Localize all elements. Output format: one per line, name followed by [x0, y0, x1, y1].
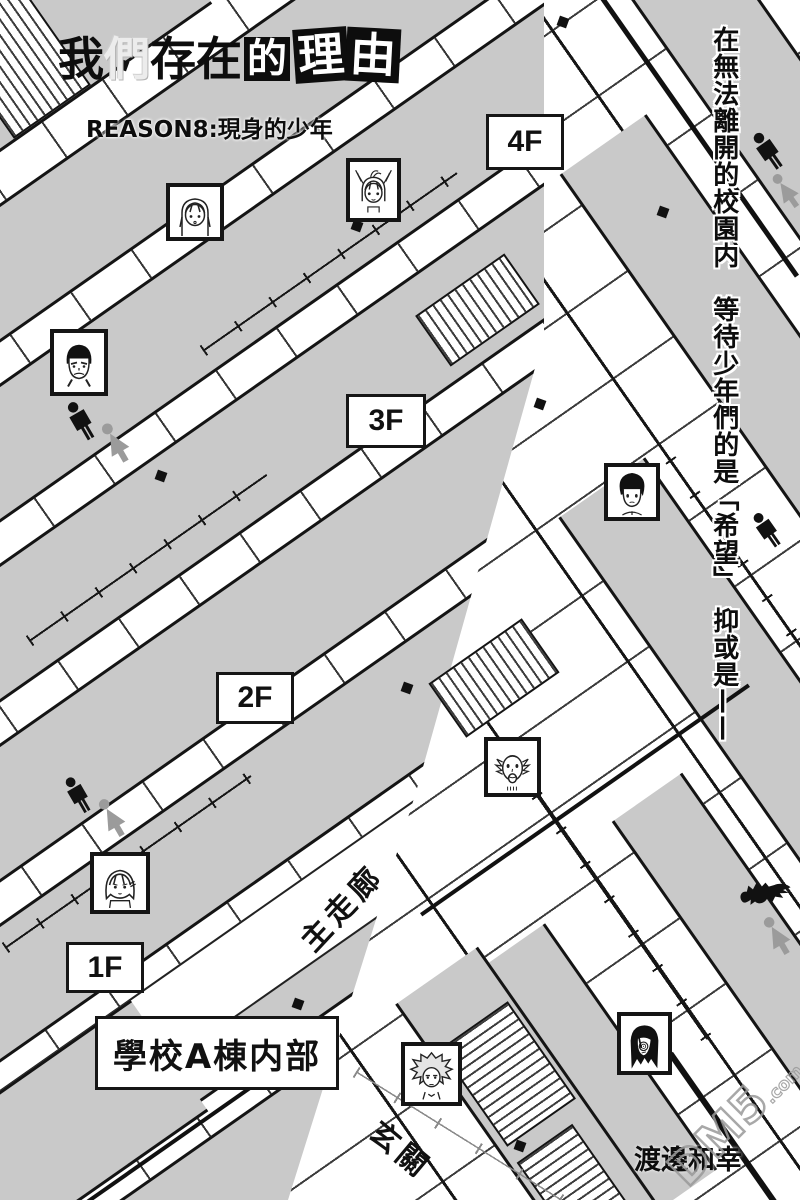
floor-label-4f-text: 4F [507, 125, 542, 159]
building-label-text: 學校A棟内部 [113, 1029, 321, 1078]
title-char: 們 [104, 36, 150, 82]
portrait-girl-long-hair [166, 183, 224, 241]
title-char: 在 [196, 36, 242, 82]
girl-twintails-face-icon [350, 162, 397, 218]
title-char: 由 [345, 27, 402, 84]
floor-label-4f: 4F [486, 114, 564, 170]
dark-haired-glasses-face-icon [621, 1016, 668, 1071]
building-label-box: 學校A棟内部 [95, 1016, 339, 1090]
portrait-surprised-man [484, 737, 541, 797]
floor-label-3f: 3F [346, 394, 426, 448]
title-char: 我 [58, 36, 104, 82]
chapter-subtitle: REASON8:現身的少年 [86, 110, 333, 144]
portrait-girl-short-hair [90, 852, 150, 914]
portrait-boy-messy-hair [401, 1042, 462, 1106]
floor-label-1f-text: 1F [87, 951, 122, 985]
floor-label-1f: 1F [66, 942, 144, 993]
girl-short-hair-face-icon [94, 856, 146, 910]
title-char: 的 [244, 37, 290, 81]
boy-messy-hair-face-icon [405, 1046, 458, 1102]
boy-spiky-hair-face-icon [608, 467, 656, 517]
portrait-boy-spiky-hair [604, 463, 660, 521]
tough-guy-face-icon [54, 333, 104, 392]
manga-page: 4F 3F 2F 1F 學校A棟内部 主走廊 玄關 我 們 存 在 的 理 由 … [0, 0, 800, 1200]
portrait-girl-twintails [346, 158, 401, 222]
series-title: 我 們 存 在 的 理 由 [58, 28, 400, 82]
portrait-tough-guy [50, 329, 108, 396]
narration-caption: 在無法離開的校園内 等待少年們的是「希望」 抑或是—— [704, 26, 742, 806]
title-char: 存 [150, 36, 196, 82]
floor-label-2f-text: 2F [237, 681, 272, 715]
portrait-dark-haired-glasses [617, 1012, 672, 1075]
title-char: 理 [292, 26, 350, 84]
floor-label-2f: 2F [216, 672, 294, 724]
girl-long-hair-face-icon [170, 187, 220, 237]
surprised-man-face-icon [488, 741, 537, 793]
floor-label-3f-text: 3F [368, 404, 403, 438]
